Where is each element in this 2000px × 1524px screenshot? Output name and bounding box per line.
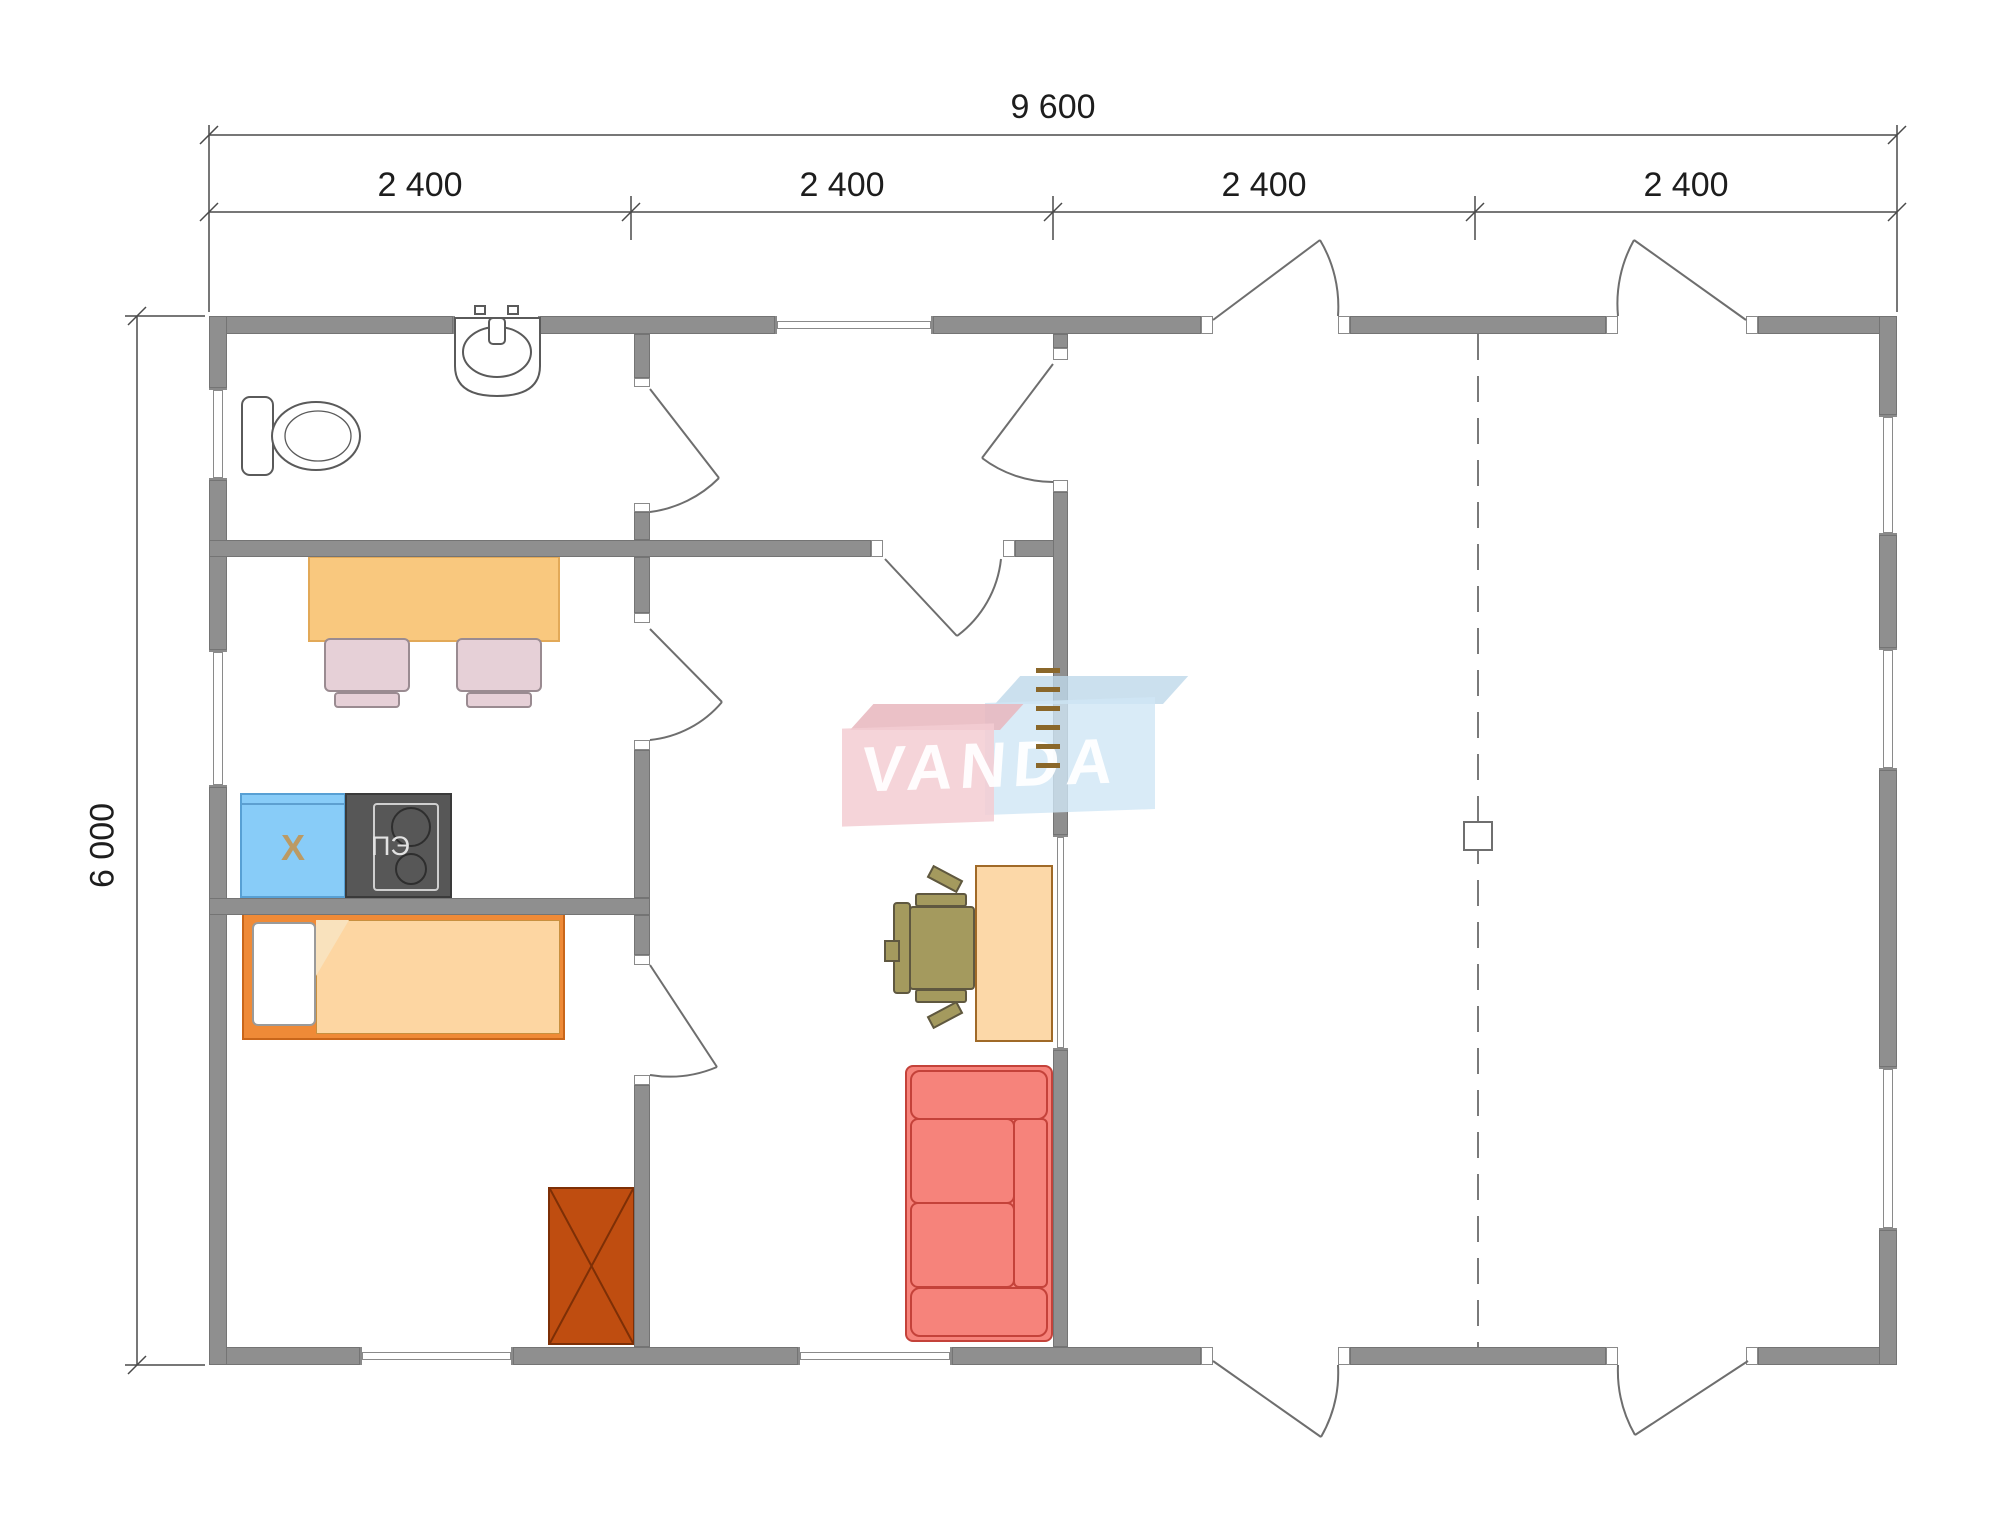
dim-module-3: 2 400 <box>1194 166 1334 205</box>
door-jamb <box>1201 1347 1213 1365</box>
door-jamb <box>634 378 650 387</box>
wall-segment <box>1758 316 1897 334</box>
door-jamb <box>1606 316 1618 334</box>
window-kitchen-left <box>209 650 227 787</box>
door-jamb <box>634 503 650 512</box>
dim-module-2: 2 400 <box>772 166 912 205</box>
window-bedroom-bottom <box>360 1347 513 1365</box>
wall-segment <box>1053 334 1068 348</box>
wall-segment <box>1350 1347 1606 1365</box>
door-jamb <box>634 613 650 623</box>
window-glazing <box>213 390 223 478</box>
wall-segment <box>1879 316 1897 415</box>
window-glazing <box>777 321 931 329</box>
wall-segment <box>933 316 1201 334</box>
window-livingroom-interior <box>1053 835 1068 1050</box>
wall-segment <box>1879 535 1897 648</box>
door-jamb <box>1003 540 1015 557</box>
wall-segment <box>634 557 650 613</box>
wall-segment <box>634 915 650 955</box>
door-jamb <box>1053 348 1068 360</box>
door-jamb <box>634 1075 650 1085</box>
floor-plan-canvas: X ПЭ VANDA <box>0 0 2000 1524</box>
window-glazing <box>455 321 538 329</box>
door-jamb <box>1746 316 1758 334</box>
wall-segment <box>1350 316 1606 334</box>
window-terrace-right-2 <box>1879 648 1897 770</box>
wall-segment <box>1053 1050 1068 1347</box>
wall-segment <box>209 316 453 334</box>
door-jamb <box>634 740 650 750</box>
window-glazing <box>1883 650 1893 768</box>
window-hall-top <box>775 316 933 334</box>
window-terrace-right-1 <box>1879 415 1897 535</box>
window-glazing <box>213 652 223 785</box>
door-jamb <box>1053 480 1068 492</box>
wall-segment <box>634 512 650 540</box>
dim-module-4: 2 400 <box>1616 166 1756 205</box>
door-jamb <box>1606 1347 1618 1365</box>
logo-text: VANDA <box>859 723 1122 806</box>
wall-segment <box>209 1347 360 1365</box>
wall-segment <box>1758 1347 1897 1365</box>
window-glazing <box>1057 837 1064 1048</box>
wall-segment <box>540 316 775 334</box>
door-jamb <box>871 540 883 557</box>
window-glazing <box>1883 417 1893 533</box>
window-glazing <box>1883 1069 1893 1228</box>
dim-module-1: 2 400 <box>350 166 490 205</box>
door-jamb <box>634 955 650 965</box>
wall-segment <box>1879 770 1897 1067</box>
wall-segment <box>209 898 650 915</box>
window-livingroom-bottom <box>798 1347 952 1365</box>
wall-segment <box>1879 1230 1897 1365</box>
window-bathroom-left <box>209 388 227 480</box>
wall-segment <box>209 316 227 388</box>
window-glazing <box>800 1352 950 1360</box>
wall-segment <box>952 1347 1201 1365</box>
wall-segment <box>634 1085 650 1347</box>
window-terrace-right-3 <box>1879 1067 1897 1230</box>
wall-segment <box>209 787 227 1365</box>
window-above-sink <box>453 316 540 334</box>
wall-segment <box>209 540 871 557</box>
wall-segment <box>634 750 650 898</box>
door-jamb <box>1201 316 1213 334</box>
dim-overall-height: 6 000 <box>84 776 123 916</box>
door-jamb <box>1338 316 1350 334</box>
wall-segment <box>513 1347 798 1365</box>
wall-segment <box>634 334 650 378</box>
door-jamb <box>1746 1347 1758 1365</box>
window-glazing <box>362 1352 511 1360</box>
door-jamb <box>1338 1347 1350 1365</box>
wall-segment <box>209 480 227 650</box>
dim-overall-width: 9 600 <box>953 88 1153 127</box>
